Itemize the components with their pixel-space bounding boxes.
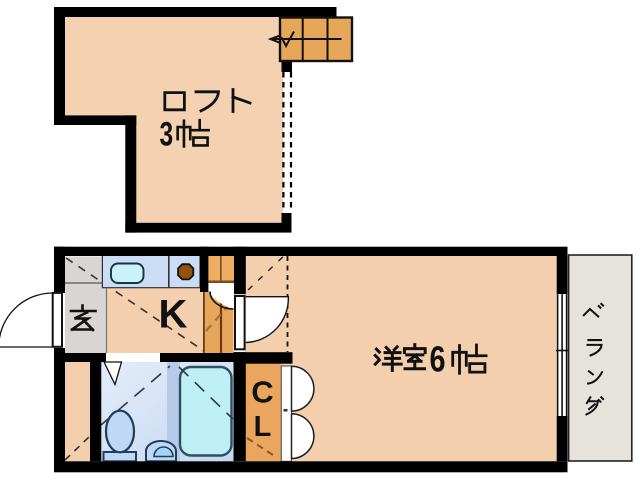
svg-text:K: K	[159, 293, 188, 337]
svg-text:C: C	[251, 375, 273, 410]
svg-text:6: 6	[430, 338, 446, 379]
svg-text:3: 3	[160, 116, 174, 154]
svg-text:L: L	[254, 411, 272, 443]
